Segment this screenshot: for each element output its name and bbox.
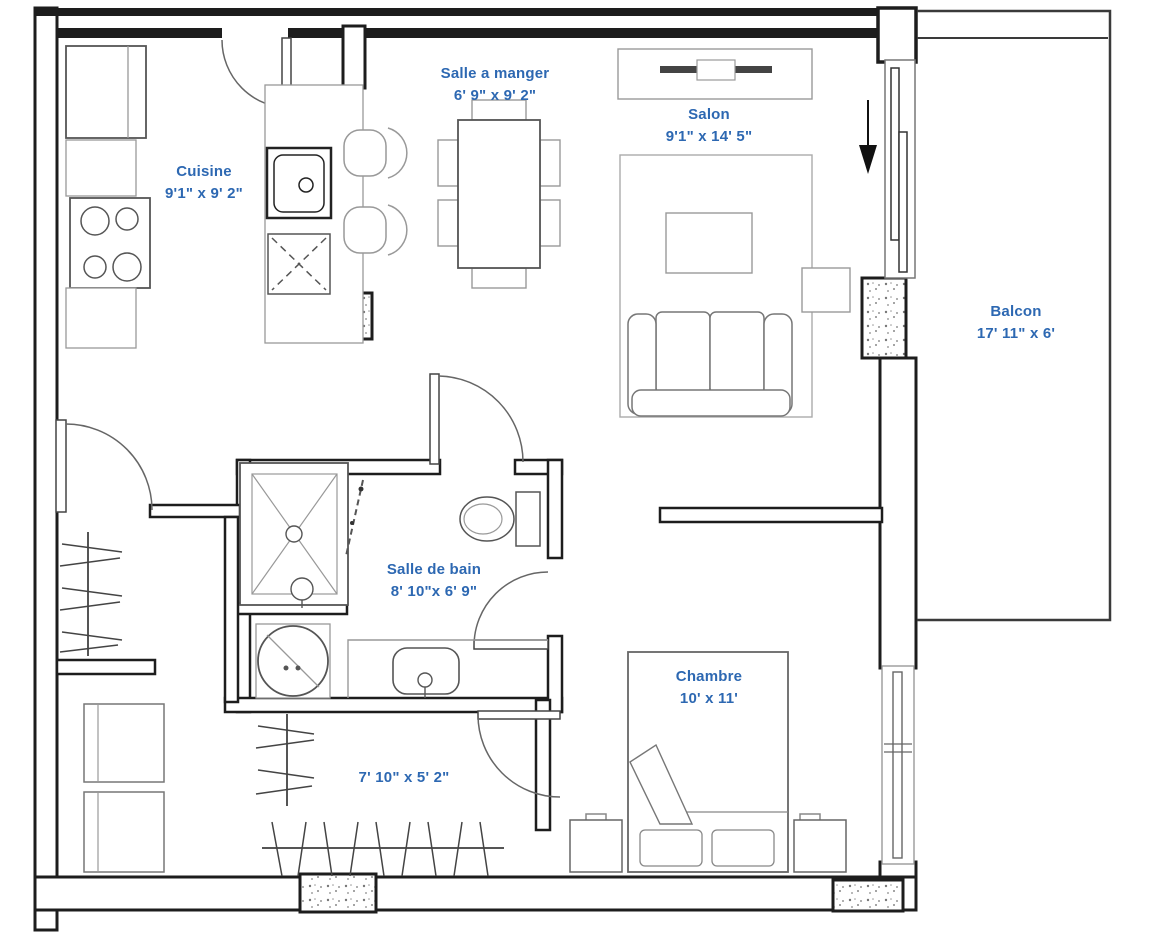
laundry-tub (256, 624, 330, 698)
room-label-garde-robe: 7' 10" x 5' 2" (359, 767, 450, 789)
nightstand (794, 814, 846, 872)
dining-table (458, 120, 540, 268)
room-name: Chambre (676, 666, 742, 688)
lower-cabinet (66, 140, 136, 196)
room-dims: 9'1" x 9' 2" (165, 183, 243, 205)
dining-chair (438, 200, 458, 246)
room-label-salon: Salon 9'1" x 14' 5" (666, 104, 753, 148)
kitchen-sink (267, 148, 331, 218)
washer (84, 704, 164, 782)
side-table (802, 268, 850, 312)
room-label-salle-de-bain: Salle de bain 8' 10"x 6' 9" (387, 559, 481, 603)
room-label-cuisine: Cuisine 9'1" x 9' 2" (165, 161, 243, 205)
floor-plan-drawing (0, 0, 1170, 942)
hall-closet-door (56, 420, 152, 512)
base-counter (66, 288, 136, 348)
room-label-balcon: Balcon 17' 11" x 6' (977, 301, 1055, 345)
room-label-chambre: Chambre 10' x 11' (676, 666, 742, 710)
entry-arrow-icon (859, 100, 877, 174)
toilet (460, 492, 540, 546)
room-name: Cuisine (165, 161, 243, 183)
room-dims: 7' 10" x 5' 2" (359, 767, 450, 789)
tv-console (618, 49, 812, 99)
room-name: Salon (666, 104, 753, 126)
room-dims: 6' 9" x 9' 2" (441, 85, 550, 107)
pillow (712, 830, 774, 866)
coffee-table (666, 213, 752, 273)
dining-set (438, 100, 560, 288)
dryer (84, 792, 164, 872)
shower (240, 463, 348, 608)
dining-chair (472, 268, 526, 288)
room-name: Balcon (977, 301, 1055, 323)
room-name: Salle a manger (441, 63, 550, 85)
dining-chair (540, 200, 560, 246)
fridge (66, 46, 146, 138)
room-dims: 9'1" x 14' 5" (666, 126, 753, 148)
bathroom-door-top (430, 374, 523, 464)
pillow (640, 830, 702, 866)
nightstand (570, 814, 622, 872)
sliding-patio-door (885, 60, 915, 278)
dishwasher (268, 234, 330, 294)
floor-plan: Salle a manger 6' 9" x 9' 2" Salon 9'1" … (0, 0, 1170, 942)
room-name: Salle de bain (387, 559, 481, 581)
dining-chair (540, 140, 560, 186)
room-label-salle-a-manger: Salle a manger 6' 9" x 9' 2" (441, 63, 550, 107)
dining-chair (438, 140, 458, 186)
room-dims: 10' x 11' (676, 688, 742, 710)
bathroom-door-side (474, 572, 548, 649)
room-dims: 8' 10"x 6' 9" (387, 581, 481, 603)
room-dims: 17' 11" x 6' (977, 323, 1055, 345)
stove (70, 198, 150, 288)
bedroom-window (882, 666, 914, 864)
sofa (628, 312, 792, 416)
